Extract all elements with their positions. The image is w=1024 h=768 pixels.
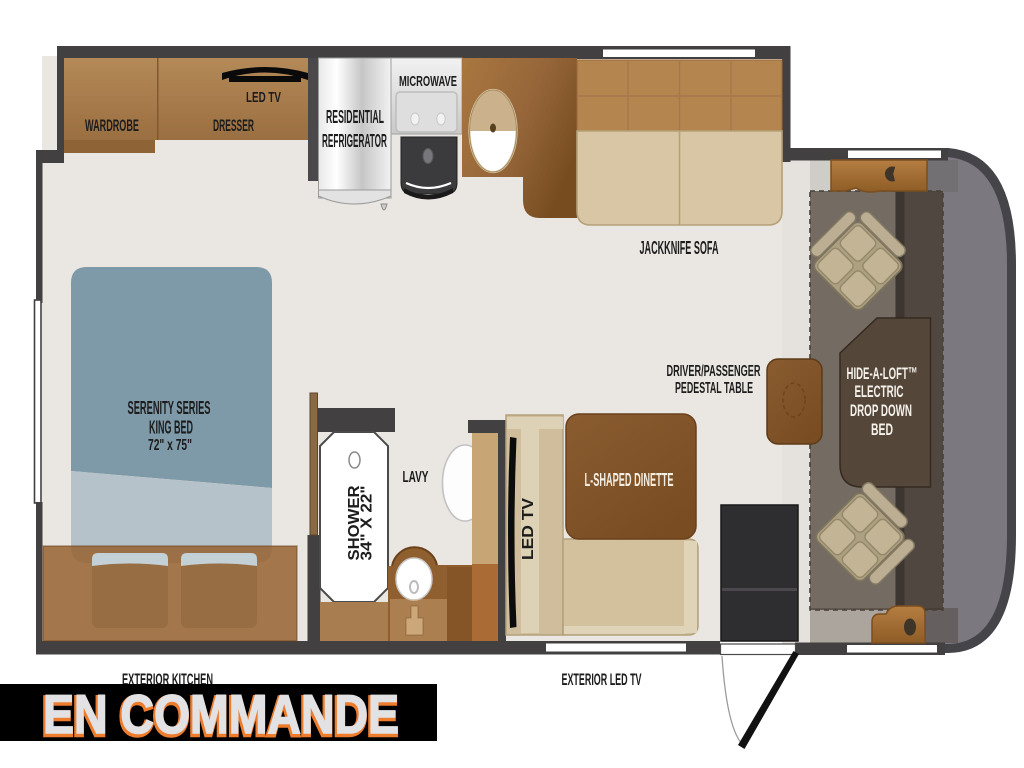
svg-text:EN COMMANDE: EN COMMANDE bbox=[43, 683, 399, 745]
svg-text:EXTERIOR LED TV: EXTERIOR LED TV bbox=[562, 671, 642, 689]
svg-text:DRESSER: DRESSER bbox=[213, 117, 254, 135]
svg-text:WARDROBE: WARDROBE bbox=[85, 117, 139, 135]
svg-text:ELECTRIC: ELECTRIC bbox=[855, 382, 904, 401]
svg-text:JACKKNIFE SOFA: JACKKNIFE SOFA bbox=[640, 238, 719, 258]
svg-text:DROP DOWN: DROP DOWN bbox=[850, 401, 912, 420]
svg-text:RESIDENTIAL: RESIDENTIAL bbox=[326, 107, 384, 127]
svg-text:LAVY: LAVY bbox=[403, 469, 429, 486]
svg-text:34" X 22": 34" X 22" bbox=[359, 486, 376, 561]
svg-text:LED TV: LED TV bbox=[520, 497, 537, 560]
svg-text:KING BED: KING BED bbox=[149, 418, 193, 438]
svg-text:PEDESTAL TABLE: PEDESTAL TABLE bbox=[675, 380, 753, 397]
svg-text:MICROWAVE: MICROWAVE bbox=[399, 73, 457, 90]
svg-text:LED TV: LED TV bbox=[246, 89, 281, 106]
svg-text:DRIVER/PASSENGER: DRIVER/PASSENGER bbox=[667, 363, 761, 380]
svg-text:REFRIGERATOR: REFRIGERATOR bbox=[322, 131, 387, 151]
svg-text:BED: BED bbox=[871, 420, 893, 439]
svg-text:L-SHAPED DINETTE: L-SHAPED DINETTE bbox=[585, 470, 674, 490]
svg-text:HIDE-A-LOFT™: HIDE-A-LOFT™ bbox=[847, 364, 918, 383]
svg-text:72" x 75": 72" x 75" bbox=[148, 437, 192, 454]
svg-text:SERENITY SERIES: SERENITY SERIES bbox=[128, 398, 211, 418]
